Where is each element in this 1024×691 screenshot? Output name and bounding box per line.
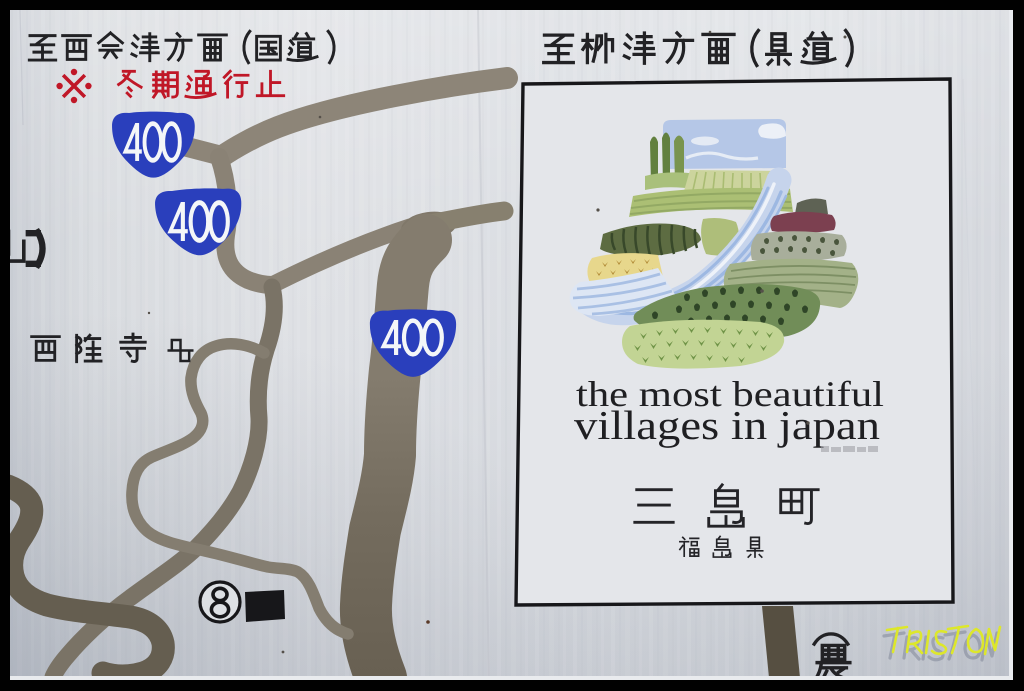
svg-text:villages in japan: villages in japan xyxy=(574,402,880,448)
